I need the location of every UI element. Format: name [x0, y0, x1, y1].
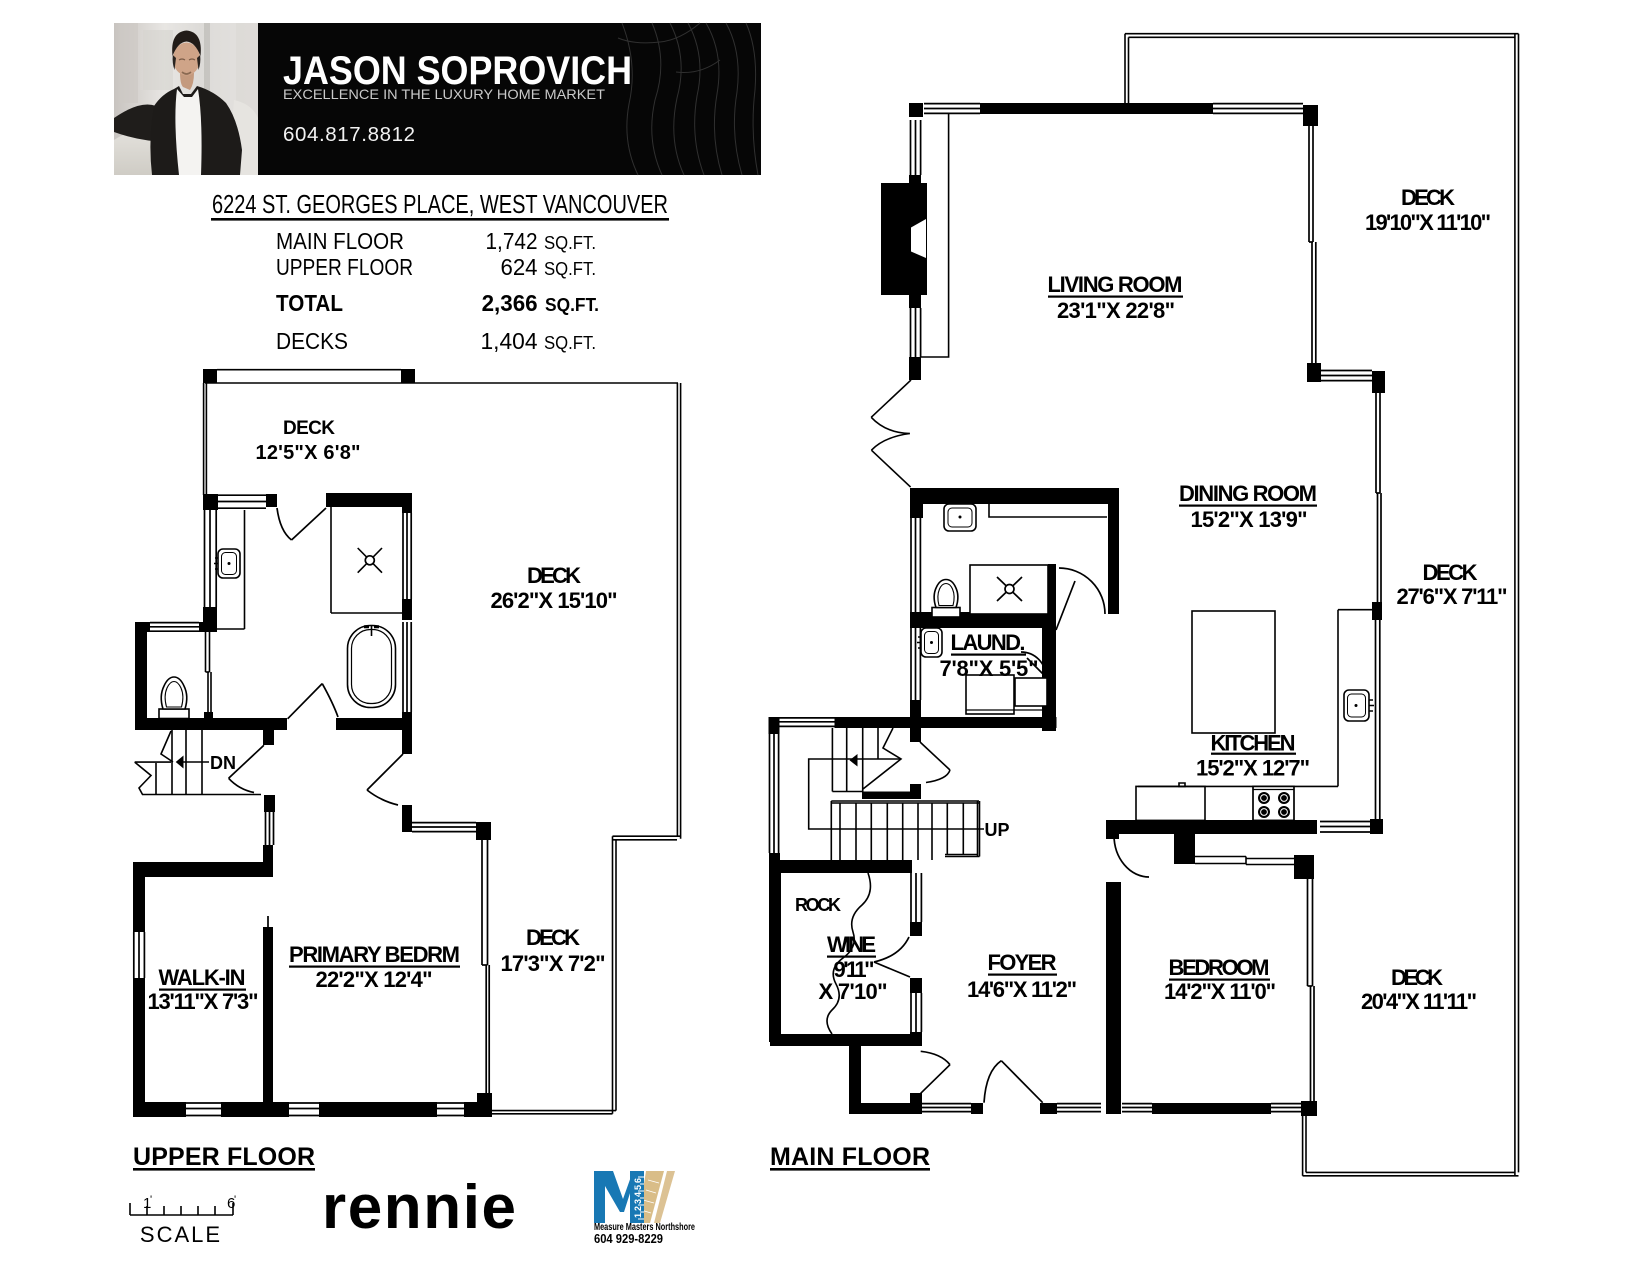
svg-text:UPPER FLOOR: UPPER FLOOR: [133, 1143, 315, 1171]
svg-text:13'11"X 7'3": 13'11"X 7'3": [148, 989, 259, 1014]
svg-text:27'6"X 7'11": 27'6"X 7'11": [1397, 584, 1508, 609]
svg-text:22'2"X 12'4": 22'2"X 12'4": [316, 967, 433, 992]
svg-text:DINING ROOM: DINING ROOM: [1179, 481, 1317, 506]
svg-text:1,404: 1,404: [481, 328, 538, 354]
svg-text:DECK: DECK: [527, 563, 581, 588]
svg-text:23'1"X 22'8": 23'1"X 22'8": [1057, 298, 1175, 323]
svg-text:': ': [150, 1194, 152, 1206]
svg-text:WINE: WINE: [827, 932, 876, 957]
svg-text:15'2"X 12'7": 15'2"X 12'7": [1196, 756, 1310, 781]
svg-text:SCALE: SCALE: [140, 1222, 222, 1247]
svg-text:SQ.FT.: SQ.FT.: [545, 294, 599, 315]
svg-text:EXCELLENCE IN THE LUXURY HOME: EXCELLENCE IN THE LUXURY HOME MARKET: [283, 86, 605, 102]
svg-text:ROCK: ROCK: [795, 895, 841, 915]
svg-text:BEDROOM: BEDROOM: [1169, 955, 1270, 980]
svg-text:12'5"X 6'8": 12'5"X 6'8": [256, 442, 361, 464]
svg-text:624: 624: [501, 254, 538, 280]
svg-text:123456: 123456: [633, 1176, 643, 1218]
svg-text:UPPER FLOOR: UPPER FLOOR: [276, 254, 413, 280]
svg-text:LIVING ROOM: LIVING ROOM: [1048, 272, 1183, 297]
svg-text:DN: DN: [210, 753, 236, 773]
svg-text:LAUND.: LAUND.: [951, 630, 1026, 655]
svg-text:20'4"X 11'11": 20'4"X 11'11": [1361, 989, 1477, 1014]
svg-text:KITCHEN: KITCHEN: [1211, 731, 1296, 756]
svg-text:rennie: rennie: [322, 1173, 516, 1242]
svg-text:SQ.FT.: SQ.FT.: [544, 332, 596, 353]
svg-text:14'2"X 11'0": 14'2"X 11'0": [1164, 979, 1276, 1004]
svg-text:WALK-IN: WALK-IN: [159, 965, 246, 990]
svg-text:604 929-8229: 604 929-8229: [594, 1232, 663, 1246]
svg-text:PRIMARY BEDRM: PRIMARY BEDRM: [289, 942, 460, 967]
svg-text:DECK: DECK: [1401, 185, 1455, 210]
svg-text:7'8"X 5'5": 7'8"X 5'5": [940, 656, 1039, 681]
svg-text:604.817.8812: 604.817.8812: [283, 123, 416, 146]
svg-text:SQ.FT.: SQ.FT.: [544, 258, 596, 279]
svg-text:DECK: DECK: [283, 418, 335, 439]
svg-text:19'10"X 11'10": 19'10"X 11'10": [1365, 210, 1491, 235]
svg-text:FOYER: FOYER: [988, 950, 1057, 975]
svg-text:TOTAL: TOTAL: [276, 290, 343, 316]
svg-text:6224 ST. GEORGES PLACE, WEST V: 6224 ST. GEORGES PLACE, WEST VANCOUVER: [212, 191, 668, 219]
svg-text:1,742: 1,742: [486, 228, 538, 254]
svg-text:DECK: DECK: [1391, 965, 1443, 990]
svg-text:14'6"X 11'2": 14'6"X 11'2": [967, 977, 1077, 1002]
svg-text:17'3"X 7'2": 17'3"X 7'2": [501, 951, 606, 976]
svg-text:DECK: DECK: [526, 925, 580, 950]
svg-text:15'2"X 13'9": 15'2"X 13'9": [1191, 507, 1308, 532]
svg-text:DECKS: DECKS: [276, 328, 348, 354]
svg-text:': ': [234, 1194, 236, 1206]
svg-text:2,366: 2,366: [482, 290, 538, 316]
svg-text:26'2"X 15'10": 26'2"X 15'10": [491, 588, 618, 613]
svg-text:UP: UP: [984, 820, 1009, 840]
svg-text:DECK: DECK: [1423, 560, 1478, 585]
svg-text:SQ.FT.: SQ.FT.: [544, 232, 596, 253]
svg-text:MAIN FLOOR: MAIN FLOOR: [770, 1143, 930, 1171]
svg-text:X 7'10": X 7'10": [819, 979, 888, 1004]
svg-text:MAIN FLOOR: MAIN FLOOR: [276, 228, 404, 254]
